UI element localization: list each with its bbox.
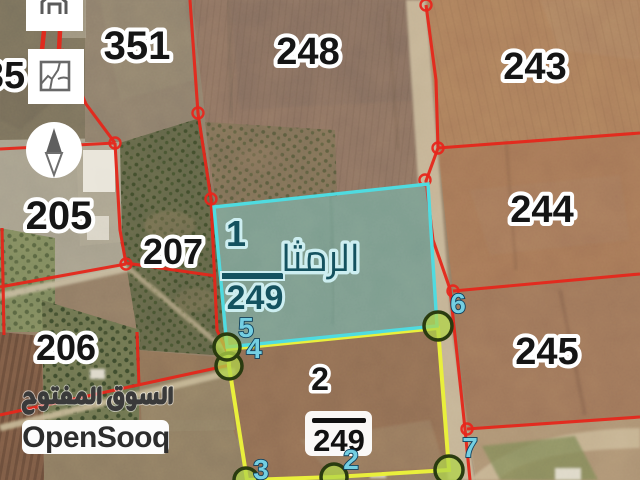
svg-text:206: 206 xyxy=(36,327,96,368)
svg-text:7: 7 xyxy=(462,432,478,463)
svg-text:205: 205 xyxy=(26,194,93,238)
svg-text:1: 1 xyxy=(226,213,246,254)
svg-text:244: 244 xyxy=(510,189,573,231)
svg-text:6: 6 xyxy=(450,288,466,319)
svg-text:OpenSooq: OpenSooq xyxy=(22,421,170,454)
svg-text:3: 3 xyxy=(253,454,269,480)
svg-text:243: 243 xyxy=(503,46,566,88)
svg-text:2: 2 xyxy=(343,444,359,475)
svg-text:351: 351 xyxy=(104,24,171,68)
svg-text:207: 207 xyxy=(143,231,203,272)
svg-text:4: 4 xyxy=(246,333,262,364)
svg-text:249: 249 xyxy=(227,279,284,317)
svg-text:2: 2 xyxy=(311,361,329,397)
svg-text:35: 35 xyxy=(0,55,25,97)
svg-text:245: 245 xyxy=(515,331,578,373)
svg-text:248: 248 xyxy=(276,31,339,73)
